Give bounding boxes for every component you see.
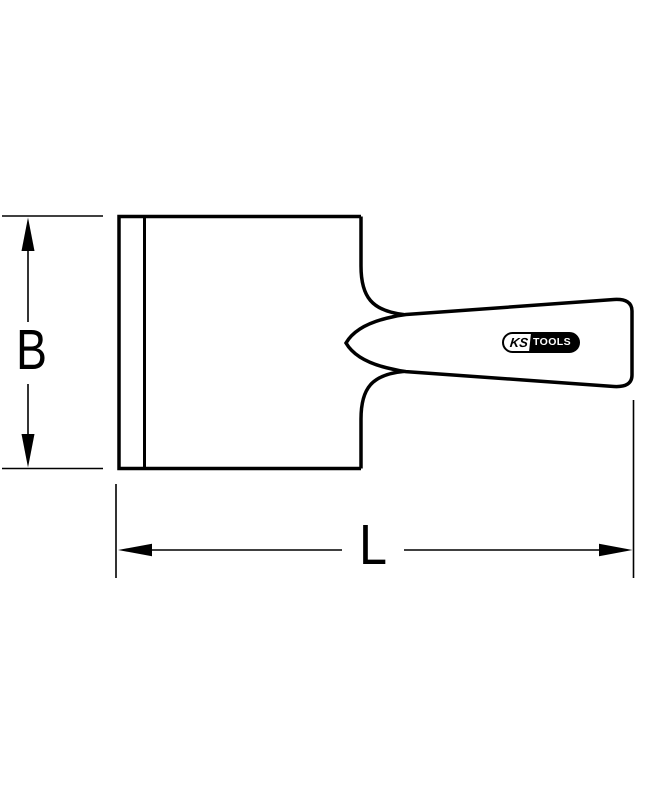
dim-b-arrow-down (22, 434, 35, 468)
diagram-lines (2, 216, 634, 578)
scraper-blade-outline (119, 217, 361, 469)
dim-l-arrow-left (118, 544, 152, 557)
ks-tools-logo: KS TOOLS (502, 332, 580, 353)
neck-curve-top (361, 217, 404, 315)
diagram-arrows-and-labels: B L (16, 218, 633, 578)
dim-label-l: L (359, 513, 387, 577)
logo-tools-text: TOOLS (530, 334, 578, 351)
dim-b-arrow-up (22, 218, 35, 252)
dim-l-arrow-right (599, 544, 633, 557)
dim-label-b: B (16, 318, 47, 382)
technical-drawing-canvas: B L KS TOOLS (0, 0, 654, 800)
scraper-diagram: B L (0, 0, 654, 800)
neck-curve-bottom (361, 371, 404, 468)
logo-ks-text: KS (502, 334, 531, 351)
